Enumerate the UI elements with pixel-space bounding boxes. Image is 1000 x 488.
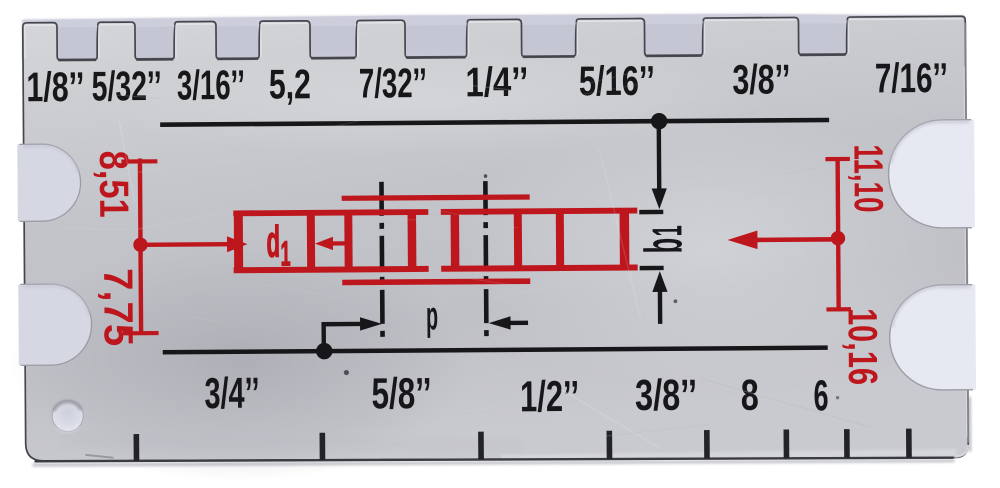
- svg-text:1: 1: [643, 225, 690, 236]
- svg-text:5,2: 5,2: [269, 60, 311, 107]
- svg-text:7/16’’: 7/16’’: [875, 54, 948, 102]
- svg-text:8,51: 8,51: [91, 151, 137, 218]
- svg-text:d: d: [266, 218, 280, 267]
- svg-text:1/4’’: 1/4’’: [465, 58, 528, 105]
- svg-text:10,16: 10,16: [839, 308, 886, 385]
- svg-text:5/8’’: 5/8’’: [371, 370, 431, 418]
- svg-text:3/16’’: 3/16’’: [177, 61, 245, 108]
- svg-text:7,75: 7,75: [95, 268, 142, 346]
- svg-text:5/16’’: 5/16’’: [579, 57, 655, 105]
- svg-text:1: 1: [280, 234, 290, 273]
- svg-text:1/8’’: 1/8’’: [26, 63, 84, 110]
- svg-text:1/2’’: 1/2’’: [520, 373, 579, 421]
- svg-text:3/8’’: 3/8’’: [732, 55, 790, 102]
- svg-text:11,10: 11,10: [845, 144, 891, 212]
- svg-text:b: b: [634, 238, 693, 254]
- svg-text:p: p: [426, 292, 438, 338]
- svg-text:3/4’’: 3/4’’: [204, 370, 259, 418]
- svg-text:8: 8: [741, 372, 759, 420]
- svg-text:7/32’’: 7/32’’: [359, 59, 427, 106]
- svg-text:5/32’’: 5/32’’: [92, 62, 162, 109]
- svg-text:3/8’’: 3/8’’: [635, 372, 697, 420]
